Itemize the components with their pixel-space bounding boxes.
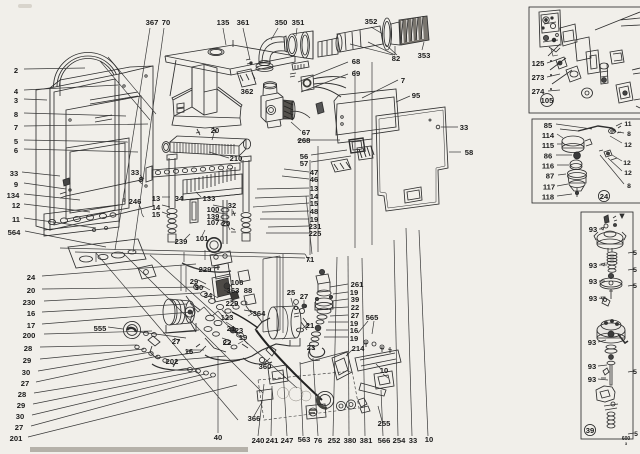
svg-text:252: 252 bbox=[328, 436, 341, 445]
svg-text:115: 115 bbox=[542, 141, 555, 150]
svg-text:8: 8 bbox=[627, 183, 631, 190]
svg-text:87: 87 bbox=[546, 172, 554, 181]
svg-text:225: 225 bbox=[309, 229, 322, 238]
svg-text:71: 71 bbox=[306, 255, 315, 264]
svg-text:68: 68 bbox=[352, 57, 360, 66]
svg-text:229: 229 bbox=[199, 265, 212, 274]
svg-text:21: 21 bbox=[306, 321, 315, 330]
svg-text:15: 15 bbox=[152, 210, 161, 219]
svg-text:363: 363 bbox=[227, 286, 240, 295]
svg-text:27: 27 bbox=[172, 337, 180, 346]
svg-text:69: 69 bbox=[352, 69, 360, 78]
svg-text:10: 10 bbox=[380, 366, 388, 375]
svg-text:240: 240 bbox=[252, 436, 265, 445]
svg-text:33: 33 bbox=[460, 123, 468, 132]
svg-text:114: 114 bbox=[542, 131, 555, 140]
svg-text:12: 12 bbox=[624, 142, 632, 149]
svg-text:564: 564 bbox=[8, 228, 21, 237]
svg-text:5: 5 bbox=[633, 369, 637, 376]
svg-text:353: 353 bbox=[418, 51, 431, 60]
svg-text:16: 16 bbox=[27, 309, 35, 318]
svg-text:20: 20 bbox=[222, 219, 230, 228]
svg-text:34: 34 bbox=[175, 194, 184, 203]
svg-text:247: 247 bbox=[281, 436, 294, 445]
svg-text:34: 34 bbox=[204, 291, 213, 300]
svg-text:20: 20 bbox=[211, 126, 219, 135]
svg-text:27: 27 bbox=[21, 379, 29, 388]
svg-text:123: 123 bbox=[221, 313, 234, 322]
svg-text:268: 268 bbox=[298, 136, 311, 145]
svg-text:95: 95 bbox=[412, 91, 421, 100]
svg-text:352: 352 bbox=[365, 17, 378, 26]
svg-text:246: 246 bbox=[129, 197, 142, 206]
svg-text:135: 135 bbox=[217, 18, 230, 27]
svg-text:214: 214 bbox=[352, 344, 365, 353]
svg-text:19: 19 bbox=[350, 334, 358, 343]
svg-text:5: 5 bbox=[633, 267, 637, 274]
svg-text:22: 22 bbox=[223, 338, 231, 347]
svg-text:116: 116 bbox=[542, 162, 554, 171]
svg-text:360: 360 bbox=[259, 362, 272, 371]
svg-text:254: 254 bbox=[393, 436, 406, 445]
svg-text:28: 28 bbox=[24, 344, 32, 353]
svg-text:118: 118 bbox=[542, 193, 554, 202]
svg-text:30: 30 bbox=[16, 412, 24, 421]
svg-text:107: 107 bbox=[207, 218, 220, 227]
svg-text:13: 13 bbox=[152, 194, 160, 203]
svg-text:58: 58 bbox=[465, 148, 473, 157]
svg-text:93: 93 bbox=[588, 362, 596, 371]
svg-text:5: 5 bbox=[634, 431, 638, 438]
svg-text:8: 8 bbox=[14, 110, 18, 119]
svg-text:134: 134 bbox=[7, 191, 20, 200]
svg-text:46: 46 bbox=[310, 175, 318, 184]
svg-text:12: 12 bbox=[623, 160, 631, 167]
svg-text:117: 117 bbox=[543, 183, 555, 192]
svg-text:101: 101 bbox=[196, 234, 209, 243]
svg-text:125: 125 bbox=[532, 59, 545, 68]
svg-text:7: 7 bbox=[401, 76, 405, 85]
svg-text:202: 202 bbox=[166, 357, 179, 366]
svg-text:12: 12 bbox=[12, 201, 20, 210]
svg-text:33: 33 bbox=[409, 436, 417, 445]
svg-text:5: 5 bbox=[633, 250, 637, 257]
svg-text:29: 29 bbox=[17, 401, 25, 410]
svg-text:380: 380 bbox=[344, 436, 357, 445]
svg-text:24: 24 bbox=[600, 192, 609, 201]
svg-text:86: 86 bbox=[544, 152, 552, 161]
svg-text:25: 25 bbox=[287, 288, 296, 297]
svg-text:565: 565 bbox=[366, 313, 379, 322]
svg-text:23: 23 bbox=[307, 343, 315, 352]
svg-text:2: 2 bbox=[14, 66, 18, 75]
svg-text:20: 20 bbox=[27, 286, 35, 295]
svg-text:350: 350 bbox=[275, 18, 288, 27]
svg-text:210: 210 bbox=[230, 154, 243, 163]
svg-text:241: 241 bbox=[266, 436, 279, 445]
svg-text:12: 12 bbox=[624, 170, 632, 177]
svg-text:230: 230 bbox=[23, 298, 36, 307]
svg-text:19: 19 bbox=[239, 333, 247, 342]
svg-text:24: 24 bbox=[27, 273, 36, 282]
svg-text:93: 93 bbox=[588, 338, 596, 347]
svg-text:8: 8 bbox=[627, 131, 631, 138]
svg-text:70: 70 bbox=[162, 18, 170, 27]
svg-text:88: 88 bbox=[244, 286, 252, 295]
svg-text:9: 9 bbox=[14, 180, 18, 189]
svg-text:367: 367 bbox=[146, 18, 159, 27]
svg-text:351: 351 bbox=[292, 18, 305, 27]
svg-text:27: 27 bbox=[300, 292, 308, 301]
svg-text:381: 381 bbox=[360, 436, 373, 445]
svg-text:3: 3 bbox=[14, 96, 18, 105]
svg-text:93: 93 bbox=[589, 225, 597, 234]
svg-text:27: 27 bbox=[15, 423, 23, 432]
svg-text:7: 7 bbox=[14, 123, 18, 132]
svg-text:30: 30 bbox=[195, 283, 203, 292]
svg-text:93: 93 bbox=[588, 375, 596, 384]
svg-text:200: 200 bbox=[23, 331, 36, 340]
svg-text:5: 5 bbox=[633, 283, 637, 290]
svg-text:563: 563 bbox=[298, 435, 311, 444]
svg-text:11: 11 bbox=[12, 215, 21, 224]
svg-text:566: 566 bbox=[378, 436, 391, 445]
svg-text:17: 17 bbox=[27, 321, 35, 330]
svg-text:364: 364 bbox=[253, 309, 266, 318]
svg-text:555: 555 bbox=[94, 324, 107, 333]
svg-text:40: 40 bbox=[214, 433, 222, 442]
svg-text:229: 229 bbox=[226, 299, 239, 308]
svg-text:11: 11 bbox=[624, 121, 631, 128]
svg-text:366: 366 bbox=[248, 414, 261, 423]
svg-text:30: 30 bbox=[22, 368, 30, 377]
svg-text:201: 201 bbox=[10, 434, 23, 443]
svg-text:361: 361 bbox=[237, 18, 250, 27]
svg-text:255: 255 bbox=[378, 419, 391, 428]
svg-text:28: 28 bbox=[18, 390, 26, 399]
svg-text:9: 9 bbox=[139, 175, 143, 184]
svg-text:105: 105 bbox=[541, 96, 554, 105]
svg-text:273: 273 bbox=[532, 73, 545, 82]
svg-text:33: 33 bbox=[10, 169, 18, 178]
svg-text:85: 85 bbox=[544, 121, 553, 130]
svg-text:57: 57 bbox=[300, 159, 308, 168]
svg-text:39: 39 bbox=[586, 426, 594, 435]
svg-text:93: 93 bbox=[589, 294, 597, 303]
svg-text:93: 93 bbox=[589, 261, 597, 270]
svg-text:32: 32 bbox=[228, 201, 236, 210]
svg-text:16: 16 bbox=[185, 347, 193, 356]
svg-text:10: 10 bbox=[425, 435, 433, 444]
svg-text:93: 93 bbox=[589, 277, 597, 286]
svg-text:362: 362 bbox=[241, 87, 254, 96]
svg-text:6: 6 bbox=[14, 146, 18, 155]
svg-text:29: 29 bbox=[23, 356, 31, 365]
svg-text:82: 82 bbox=[392, 54, 400, 63]
svg-text:133: 133 bbox=[203, 194, 216, 203]
svg-text:239: 239 bbox=[175, 237, 188, 246]
svg-text:76: 76 bbox=[314, 436, 322, 445]
